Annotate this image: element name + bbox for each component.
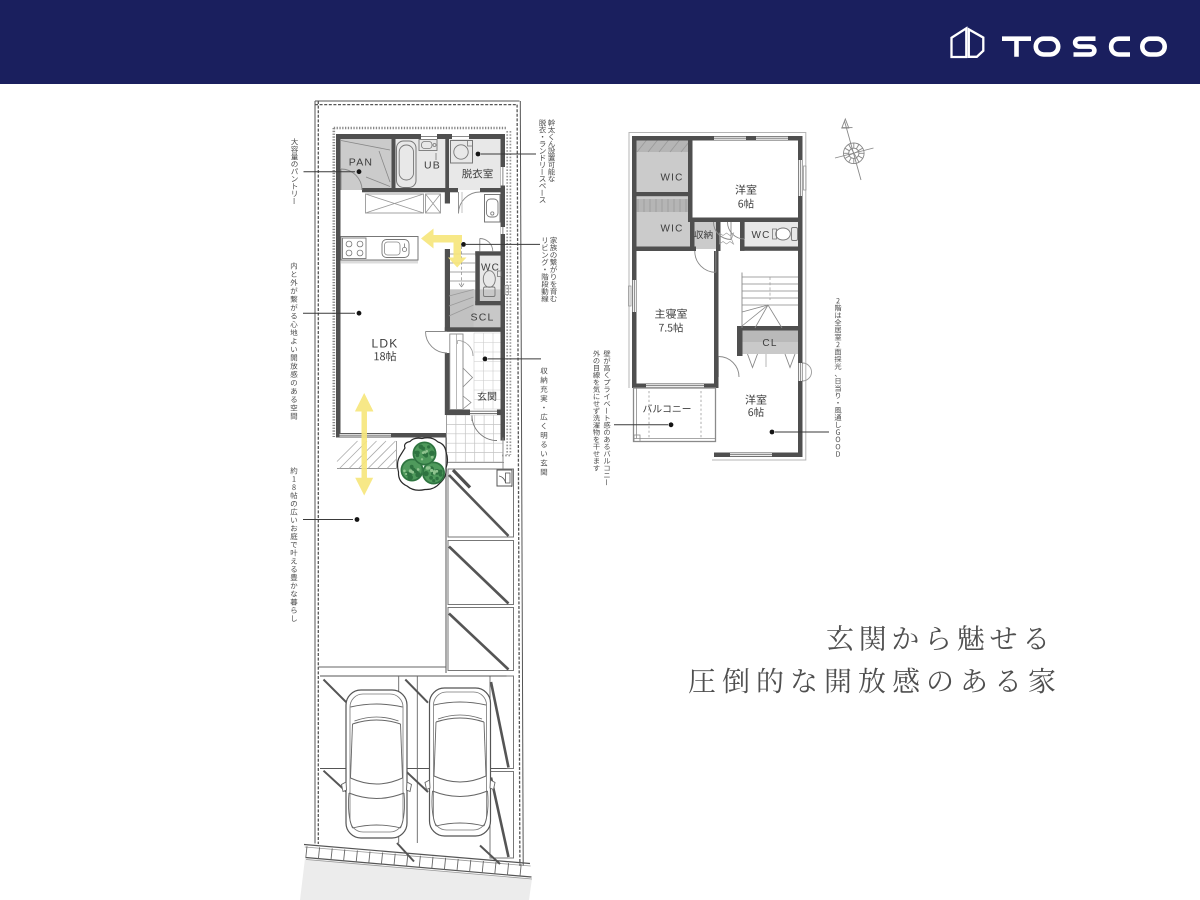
svg-text:WIC: WIC <box>660 173 683 184</box>
svg-text:WIC: WIC <box>660 224 683 235</box>
svg-text:WC: WC <box>481 263 500 274</box>
svg-text:UB: UB <box>424 160 441 172</box>
svg-text:LDK: LDK <box>372 337 399 351</box>
svg-text:CL: CL <box>762 338 777 349</box>
svg-text:WC: WC <box>751 230 770 241</box>
svg-text:SCL: SCL <box>470 312 494 324</box>
svg-text:PAN: PAN <box>349 157 373 169</box>
